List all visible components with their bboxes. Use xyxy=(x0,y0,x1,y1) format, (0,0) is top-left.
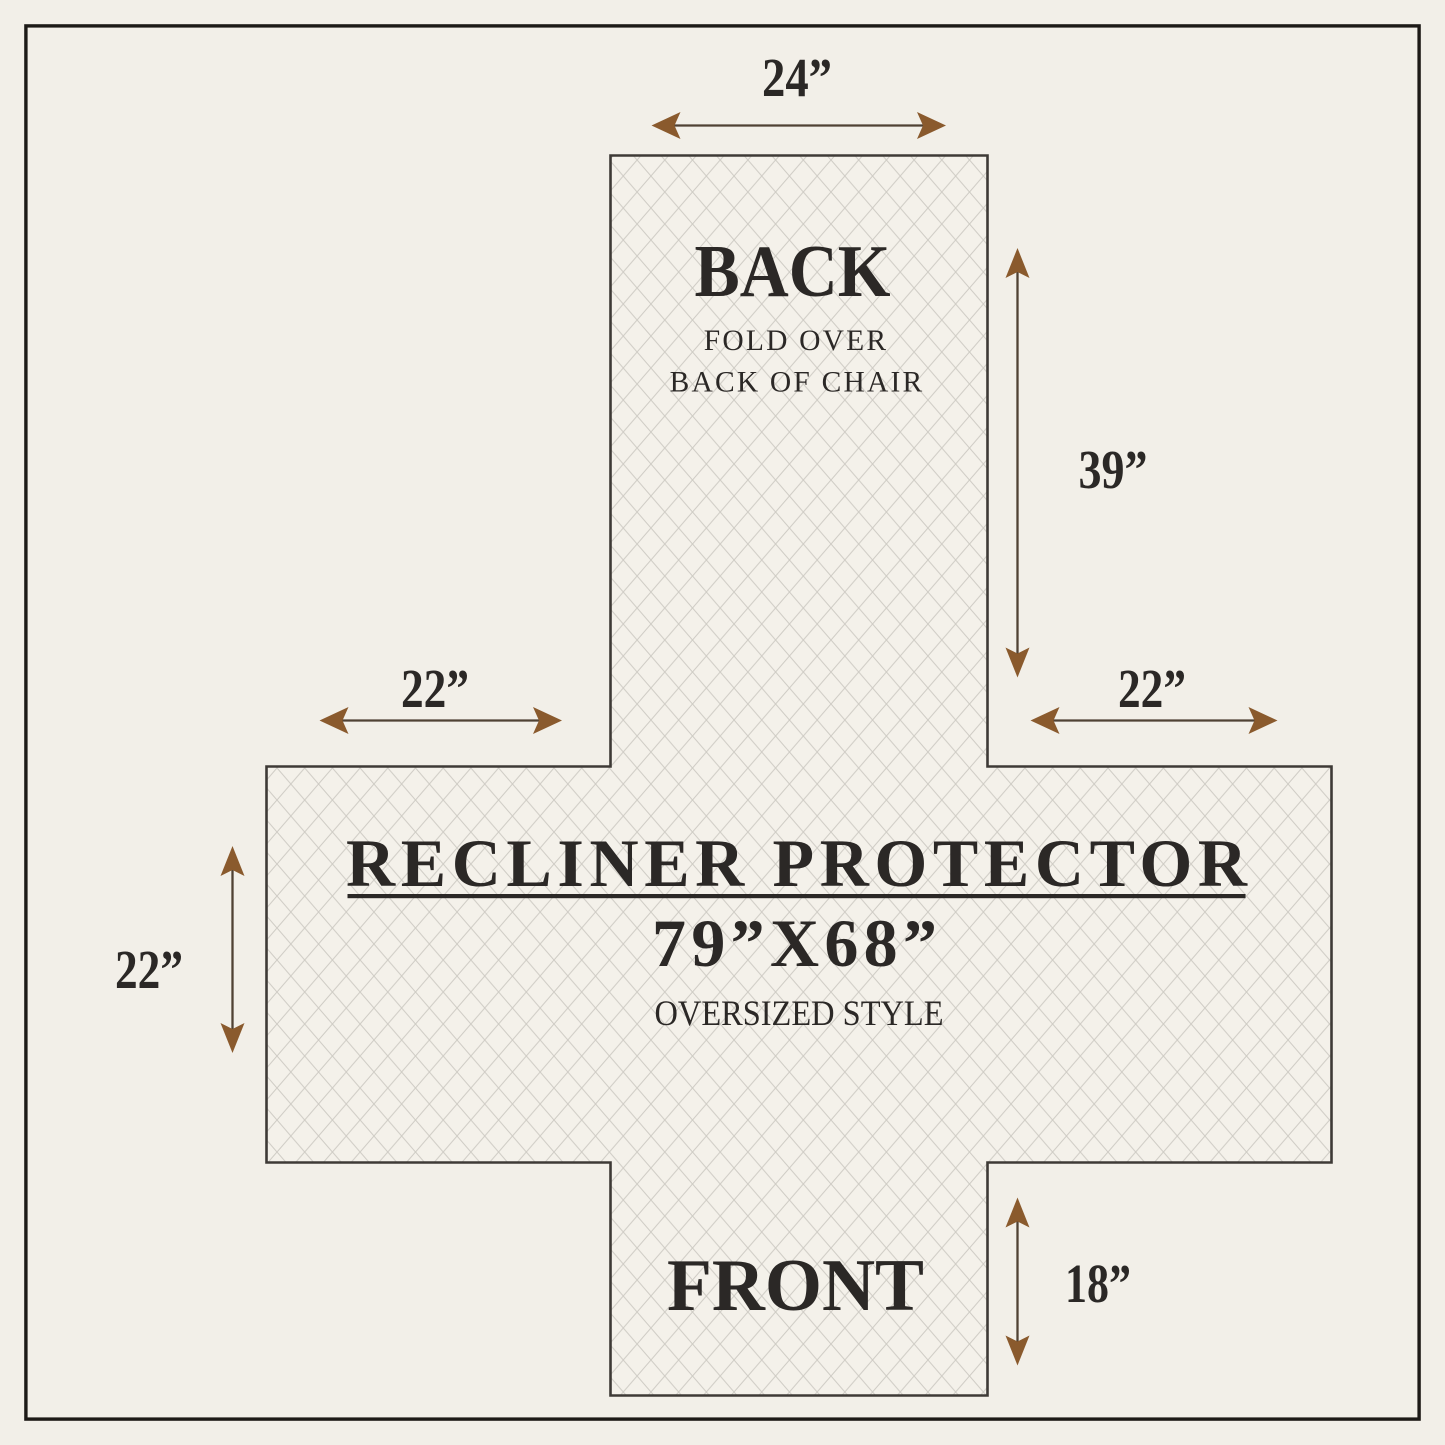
svg-text:39”: 39” xyxy=(1079,439,1148,500)
svg-text:22”: 22” xyxy=(401,658,469,719)
svg-text:BACK: BACK xyxy=(695,231,891,313)
svg-text:RECLINER PROTECTOR: RECLINER PROTECTOR xyxy=(346,825,1248,901)
svg-text:OVERSIZED STYLE: OVERSIZED STYLE xyxy=(655,993,944,1033)
svg-text:79”X68”: 79”X68” xyxy=(652,905,937,981)
svg-text:FOLD OVER: FOLD OVER xyxy=(704,325,889,357)
svg-text:18”: 18” xyxy=(1065,1253,1131,1314)
svg-text:24”: 24” xyxy=(762,47,832,108)
svg-text:22”: 22” xyxy=(1118,658,1186,719)
svg-text:BACK OF CHAIR: BACK OF CHAIR xyxy=(670,367,925,399)
svg-text:FRONT: FRONT xyxy=(667,1245,924,1327)
svg-text:22”: 22” xyxy=(115,939,183,1000)
